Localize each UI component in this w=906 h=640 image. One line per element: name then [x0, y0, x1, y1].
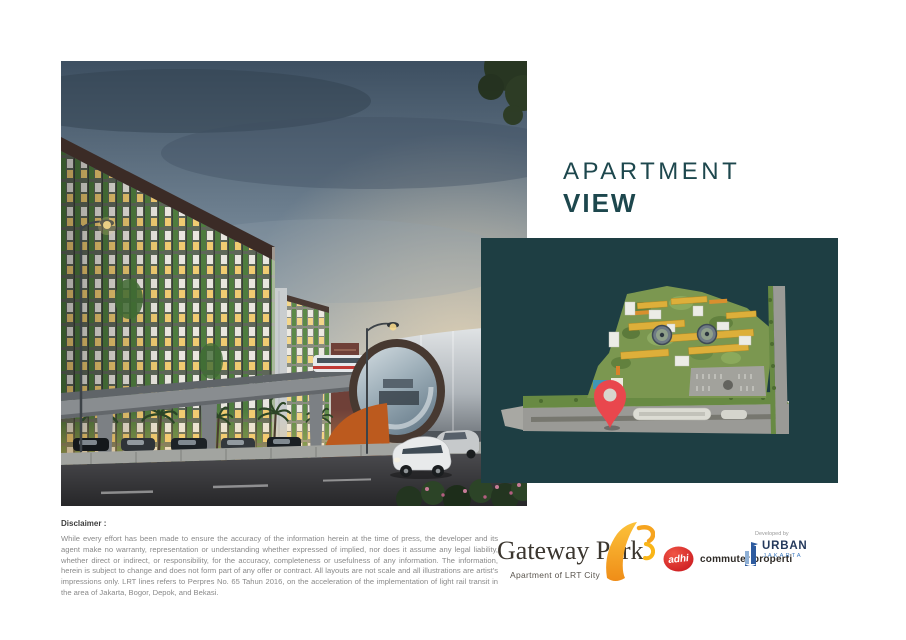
disclaimer: Disclaimer : While every effort has been…: [61, 519, 498, 599]
urban-name: URBAN: [762, 541, 808, 553]
adhi-badge-icon: adhi: [663, 546, 694, 572]
brochure-page: APARTMENT VIEW: [0, 0, 906, 640]
developed-by-label: Developed by: [755, 531, 835, 537]
gateway-bird-icon: [601, 520, 655, 586]
disclaimer-body: While every effort has been made to ensu…: [61, 534, 498, 599]
gateway-park-tagline: Apartment of LRT City: [510, 570, 600, 580]
title-line-2: VIEW: [563, 190, 740, 216]
urban-building-icon: [745, 542, 759, 566]
hero-photo: [61, 61, 527, 506]
adhi-badge-text: adhi: [662, 544, 696, 573]
title-line-1: APARTMENT: [563, 160, 740, 184]
hero-photo-render: [61, 61, 527, 506]
urban-city: JAKARTA: [763, 554, 808, 560]
urban-jakarta-logo: Developed by URBAN JAKARTA: [745, 531, 835, 566]
site-plan-map: [481, 238, 838, 483]
gateway-park-logo: Gateway Park Apartment of LRT City: [497, 520, 655, 590]
map-side-road: [768, 286, 788, 434]
site-map-panel: [481, 238, 838, 483]
page-title: APARTMENT VIEW: [563, 160, 740, 216]
disclaimer-heading: Disclaimer :: [61, 519, 498, 528]
